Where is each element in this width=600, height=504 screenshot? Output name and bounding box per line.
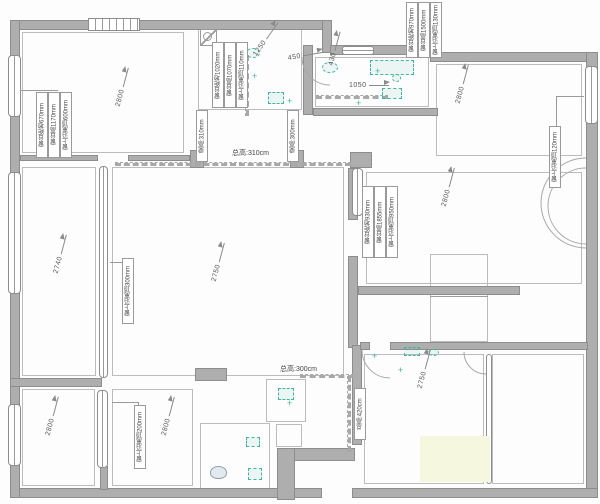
- fixture-cross-icon: +: [252, 72, 257, 81]
- window-note-group: 窗上沿离顶200mm: [134, 405, 146, 469]
- survey-note: 窗台距地670mm: [36, 92, 48, 158]
- room-outline: [492, 354, 584, 484]
- window-note-group: 梁高:300mm: [287, 110, 299, 162]
- wall-segment: [10, 488, 322, 498]
- fixture-cross-icon: +: [375, 67, 380, 76]
- survey-note: 梁高:310mm: [196, 110, 208, 162]
- fixture-cross-icon: +: [372, 352, 377, 361]
- wall-segment: [195, 368, 227, 381]
- survey-note: 窗台高1855mm: [374, 186, 386, 258]
- survey-note: 窗上沿离顶300mm: [122, 258, 134, 324]
- survey-note: 窗上沿离顶200mm: [134, 405, 146, 469]
- window-note-group: 窗台距地1020mm窗台高1070mm窗上沿离顶110mm: [212, 42, 248, 108]
- window-note-group: 总高:420cm: [354, 388, 366, 440]
- basin-icon: [392, 74, 401, 82]
- window-note-group: 窗台距地670mm窗台高1170mm窗上沿离顶600mm: [36, 92, 72, 158]
- survey-note: 窗上沿离顶600mm: [60, 92, 72, 158]
- survey-note: 总高:420cm: [354, 388, 366, 440]
- window: [342, 46, 374, 55]
- room-outline: [112, 389, 193, 486]
- window: [97, 390, 108, 468]
- fixture-icon: [382, 88, 402, 99]
- window-note-group: 窗台距地930mm窗台高1855mm窗上沿离顶950mm: [362, 186, 398, 258]
- wall-segment: [10, 20, 332, 30]
- wall-segment: [350, 152, 372, 168]
- survey-note: 窗台高1170mm: [48, 92, 60, 158]
- ceiling-height-note: 总高:300cm: [280, 364, 317, 374]
- wall-segment: [100, 466, 108, 490]
- wall-segment: [360, 342, 370, 350]
- dimension-flag-icon: [369, 85, 389, 86]
- room-outline: [112, 167, 344, 376]
- survey-note: 窗台高1070mm: [224, 42, 236, 108]
- leader-line: [556, 96, 557, 126]
- wall-segment: [313, 108, 438, 116]
- window: [88, 18, 140, 31]
- window: [99, 166, 108, 378]
- leader-line: [112, 402, 138, 403]
- survey-note: 窗上沿离顶950mm: [386, 186, 398, 258]
- survey-note: 窗台距地930mm: [362, 186, 374, 258]
- survey-note: 窗上沿离顶110mm: [236, 42, 248, 108]
- window-note-group: 窗台距地970mm窗台高1500mm窗上沿离顶130mm: [406, 2, 442, 58]
- survey-note: 窗台高1500mm: [418, 2, 430, 58]
- fixture-cross-icon: +: [287, 399, 292, 408]
- wall-segment: [277, 448, 295, 500]
- leader-dashed-line: [347, 376, 351, 452]
- room-outline: [430, 254, 488, 342]
- fixture-cross-icon: +: [356, 99, 361, 108]
- floor-plan: +++++++280012504504301050280028002740275…: [0, 0, 600, 504]
- window: [8, 55, 21, 117]
- window: [8, 172, 21, 294]
- floor-plan-screenshot: +++++++280012504504301050280028002740275…: [0, 0, 600, 504]
- room-outline: [200, 423, 270, 491]
- window: [585, 66, 598, 124]
- fixture-icon: [268, 92, 284, 104]
- wall-segment: [430, 52, 588, 62]
- survey-note: 窗台距地1020mm: [212, 42, 224, 108]
- fixture-icon: [246, 437, 260, 447]
- wall-segment: [128, 155, 190, 161]
- floor-wash-area: [420, 436, 490, 482]
- fixture-icon: [248, 468, 262, 480]
- room-outline: [276, 424, 302, 447]
- wall-segment: [10, 378, 102, 387]
- leader-line: [556, 96, 584, 97]
- leader-line: [20, 90, 58, 91]
- room-outline: [266, 379, 306, 422]
- window: [8, 404, 21, 466]
- survey-note: 窗台距地970mm: [406, 2, 418, 58]
- ceiling-height-note: 总高:310cm: [232, 148, 269, 158]
- wall-segment: [352, 488, 598, 498]
- leader-line: [430, 296, 488, 297]
- survey-note: 梁高:300mm: [287, 110, 299, 162]
- fixture-cross-icon: +: [398, 366, 403, 375]
- fixture-icon: [404, 347, 420, 356]
- toilet-icon: [210, 466, 227, 479]
- wall-segment: [348, 256, 358, 348]
- dimension-label: 1050: [349, 82, 389, 89]
- leader-dashed-line: [115, 162, 351, 166]
- window-note-group: 梁高:310mm: [196, 110, 208, 162]
- fixture-cross-icon: +: [287, 97, 292, 106]
- dimension-flag-icon: [303, 52, 323, 56]
- window-note-group: 窗上沿离顶120mm: [549, 126, 561, 188]
- survey-note: 窗上沿离顶130mm: [430, 2, 442, 58]
- leader-dashed-line: [316, 95, 388, 99]
- leader-dashed-line: [300, 374, 354, 378]
- window-note-group: 窗上沿离顶300mm: [122, 258, 134, 324]
- wall-segment: [358, 286, 520, 295]
- dimension-value: 1050: [349, 82, 367, 89]
- survey-note: 窗上沿离顶120mm: [549, 126, 561, 188]
